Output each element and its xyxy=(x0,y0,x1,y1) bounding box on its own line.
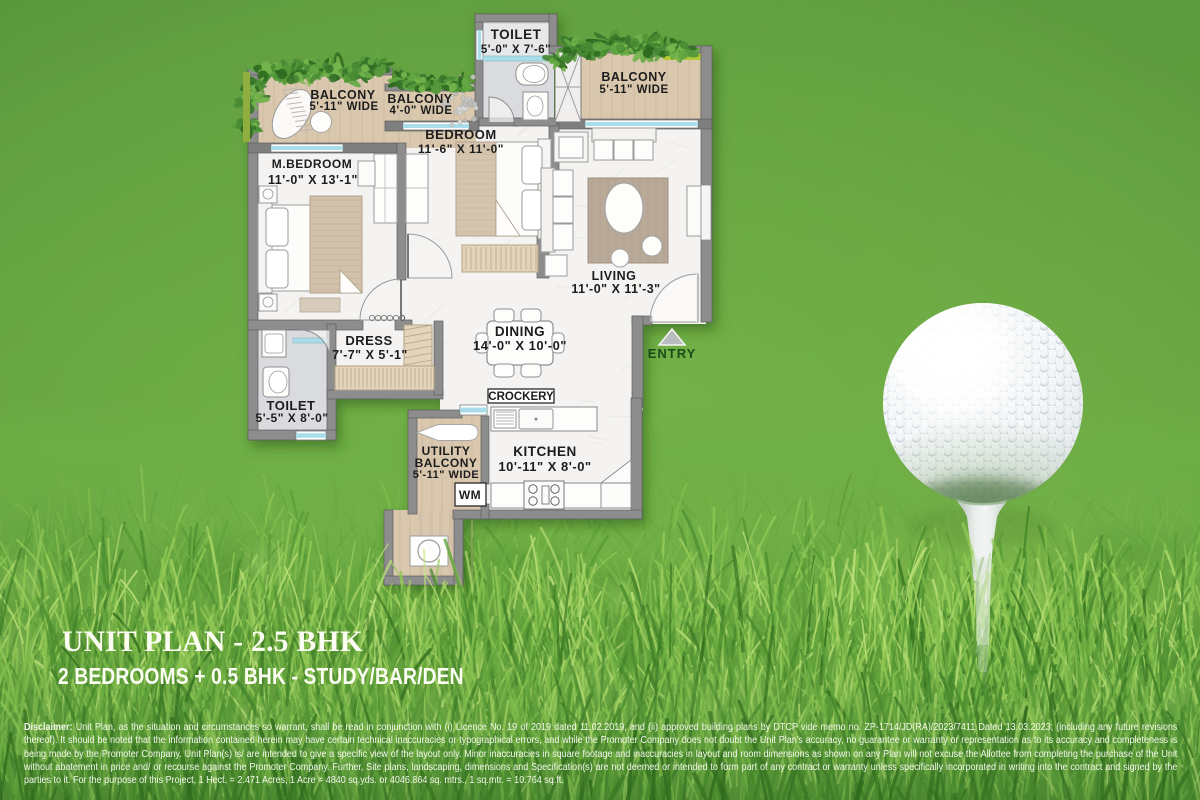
svg-text:BEDROOM: BEDROOM xyxy=(425,127,496,142)
svg-text:5'-0" X 7'-6": 5'-0" X 7'-6" xyxy=(481,44,551,56)
svg-text:11'-6" X 11'-0": 11'-6" X 11'-0" xyxy=(418,142,504,156)
svg-text:M.BEDROOM: M.BEDROOM xyxy=(272,157,353,171)
svg-text:11'-0" X 11'-3": 11'-0" X 11'-3" xyxy=(571,282,660,296)
svg-text:ENTRY: ENTRY xyxy=(648,346,697,361)
svg-text:BALCONY: BALCONY xyxy=(415,456,478,470)
svg-text:5'-5" X 8'-0": 5'-5" X 8'-0" xyxy=(256,411,329,425)
svg-text:DINING: DINING xyxy=(495,324,545,339)
svg-text:BALCONY: BALCONY xyxy=(387,92,452,106)
svg-text:10'-11" X 8'-0": 10'-11" X 8'-0" xyxy=(498,459,591,474)
svg-text:WM: WM xyxy=(459,488,481,502)
svg-text:4'-0" WIDE: 4'-0" WIDE xyxy=(389,105,452,117)
svg-text:CROCKERY: CROCKERY xyxy=(488,391,554,403)
svg-text:5'-11" WIDE: 5'-11" WIDE xyxy=(309,101,378,113)
svg-text:LIVING: LIVING xyxy=(592,269,637,283)
svg-text:BALCONY: BALCONY xyxy=(310,88,375,102)
svg-text:5'-11" WIDE: 5'-11" WIDE xyxy=(413,469,480,481)
svg-text:5'-11" WIDE: 5'-11" WIDE xyxy=(599,84,668,96)
svg-text:14'-0" X 10'-0": 14'-0" X 10'-0" xyxy=(473,338,567,353)
svg-text:7'-7" X 5'-1": 7'-7" X 5'-1" xyxy=(332,348,408,362)
svg-text:BALCONY: BALCONY xyxy=(601,70,666,84)
svg-text:11'-0" X 13'-1": 11'-0" X 13'-1" xyxy=(268,173,358,187)
svg-text:DRESS: DRESS xyxy=(345,333,392,348)
svg-text:KITCHEN: KITCHEN xyxy=(513,444,577,459)
svg-text:TOILET: TOILET xyxy=(491,27,542,42)
